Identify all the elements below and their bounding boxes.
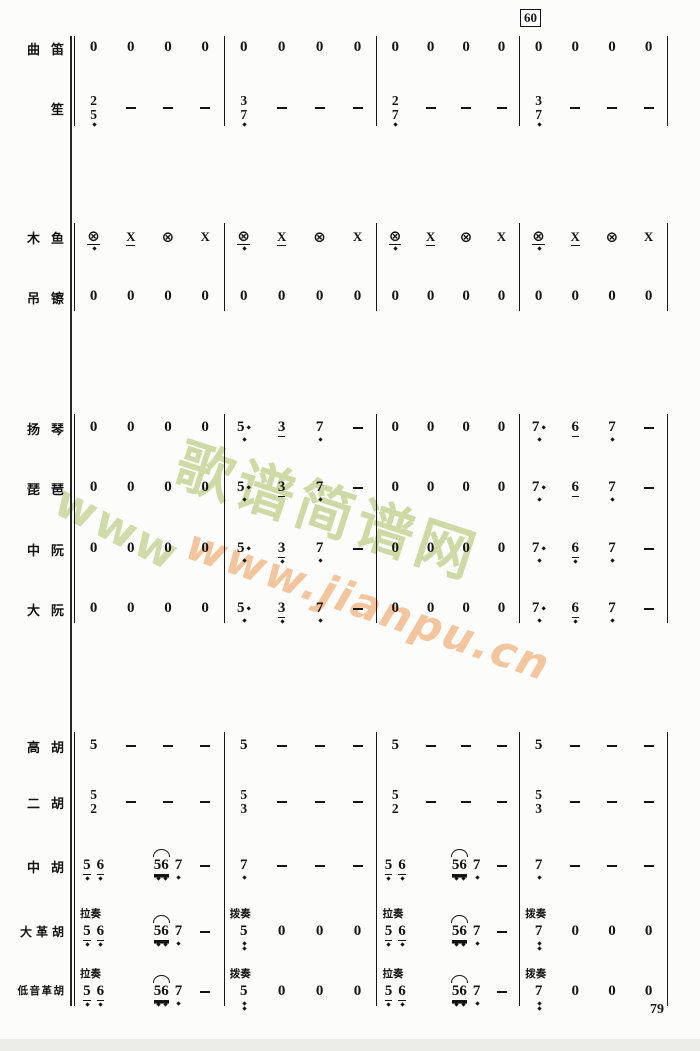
note-cell: 0000 — [75, 476, 224, 500]
beat-slot: 0 — [377, 40, 412, 56]
note-token: 0 — [391, 541, 399, 557]
note-digits: 0 — [354, 40, 362, 56]
note-digits: 0 — [316, 924, 324, 940]
dash-extension-line — [644, 548, 654, 551]
note-digits: 5 — [385, 858, 393, 875]
note-digits: ⊗ — [313, 230, 326, 245]
note-digits: 0 — [354, 984, 362, 1000]
octave-dot-icon — [394, 122, 398, 126]
dash-extension-line — [163, 745, 173, 748]
dash-extension-line — [644, 608, 654, 611]
chord-top-note: 5 — [535, 789, 542, 802]
dash-extension-line — [426, 107, 436, 110]
note-token: 0 — [127, 40, 135, 56]
beat-slot: 6 — [557, 420, 594, 437]
beat-slot: X — [484, 229, 519, 245]
tie-arc-icon — [153, 975, 170, 983]
note-token: 0 — [316, 289, 324, 305]
note-char: 5 — [391, 738, 399, 753]
note-char: 0 — [608, 924, 616, 939]
beat-slot: 0 — [301, 924, 339, 940]
note-token: 0 — [354, 984, 362, 1000]
note-digits: 6 — [572, 420, 580, 437]
note-token: 0 — [164, 420, 172, 436]
note-digits: 7 — [316, 420, 324, 436]
octave-dots — [98, 943, 105, 946]
note-cell: 0000 — [75, 597, 224, 621]
note-digits: 0 — [535, 40, 543, 56]
beat-slot: ⊗ — [75, 229, 112, 245]
rhythm-dot-icon — [541, 486, 546, 491]
note-char: 5 — [535, 738, 543, 753]
note-digits: 6 — [572, 601, 580, 618]
beat-slot: 0 — [557, 924, 594, 940]
octave-dot-row — [536, 876, 543, 879]
beat-slot: 56 — [377, 924, 412, 941]
page-bottom-strip — [0, 1039, 700, 1051]
beat-slot — [630, 107, 667, 110]
note-digits: 0 — [535, 289, 543, 305]
note-char: 5 — [237, 420, 245, 435]
instrument-label-char: 中 — [27, 540, 40, 559]
beat-slot: ⊗ — [594, 230, 631, 245]
octave-dot-icon — [156, 876, 160, 880]
instrument-label-char: 琶 — [51, 479, 64, 498]
note-digits: 5 — [240, 924, 248, 940]
octave-dot-icon — [177, 1001, 181, 1005]
octave-dot-row — [88, 247, 100, 250]
note-digits: 0 — [608, 984, 616, 1000]
note-token — [200, 991, 210, 994]
technique-label: 拉奏 — [80, 966, 101, 981]
note-token: 0 — [278, 40, 286, 56]
note-digits: X — [426, 229, 435, 246]
note-token: 0 — [572, 40, 580, 56]
instrument-label: 吊镲 — [2, 288, 64, 307]
note-char: 0 — [498, 480, 506, 495]
note-token — [461, 801, 471, 804]
note-char: 7 — [608, 480, 616, 495]
octave-dot-row — [241, 947, 248, 950]
note-char: 0 — [278, 289, 286, 304]
note-token — [497, 801, 507, 804]
octave-dot-row — [609, 438, 616, 441]
octave-dots — [474, 876, 481, 879]
octave-dot-row — [536, 942, 543, 945]
note-token: 7 — [175, 984, 183, 1000]
note-token: 0 — [90, 420, 98, 436]
beat-slot — [339, 865, 377, 868]
note-char: 0 — [90, 420, 98, 435]
note-token: 0 — [164, 601, 172, 617]
beat-slot: 0 — [263, 984, 301, 1000]
note-token: 0 — [498, 420, 506, 436]
beat-slot: 7 — [225, 858, 263, 874]
note-digits: X — [200, 229, 209, 245]
note-digits: 6 — [97, 924, 105, 941]
beat-slot: ⊗ — [149, 230, 186, 245]
note-token: 0 — [278, 289, 286, 305]
note-token — [277, 745, 287, 748]
octave-dot-row — [238, 498, 250, 501]
measure-column-4: ⊗X⊗X0000 — [520, 223, 668, 311]
note-token — [426, 107, 436, 110]
note-char: 3 — [278, 601, 286, 616]
octave-dot-row — [317, 619, 324, 622]
note-digits: 0 — [278, 40, 286, 56]
beat-slot — [263, 801, 301, 804]
octave-dot-row — [317, 498, 324, 501]
note-token: 0 — [90, 601, 98, 617]
dash-extension-line — [570, 745, 580, 748]
note-token — [644, 745, 654, 748]
beat-slot: 0 — [484, 289, 519, 305]
beat-slot: 7 — [301, 601, 339, 617]
beat-slot — [187, 991, 224, 994]
note-digits: 0 — [201, 420, 209, 436]
beat-slot: 7 — [520, 480, 557, 496]
octave-dots — [386, 1003, 393, 1006]
octave-dot-row — [453, 943, 467, 946]
octave-dot-row — [238, 438, 250, 441]
beat-slot — [339, 745, 377, 748]
octave-dots — [609, 438, 616, 441]
note-token: 37 — [240, 95, 247, 121]
octave-dot-icon — [400, 876, 404, 880]
note-char: 0 — [498, 420, 506, 435]
beat-slot: 0 — [377, 541, 412, 557]
octave-dots — [84, 943, 91, 946]
measure-column-2: 000037 — [225, 36, 378, 126]
note-char: 6 — [572, 480, 580, 495]
beat-slot: ⊗ — [301, 230, 339, 245]
note-digits: 7 — [535, 858, 543, 874]
note-digits: 0 — [645, 984, 653, 1000]
octave-dots — [573, 560, 580, 563]
x-stroke-icon: X — [126, 229, 135, 244]
beat-slot: 0 — [448, 289, 483, 305]
octave-dots — [241, 1002, 248, 1010]
note-token: 6 — [572, 601, 580, 618]
dash-extension-line — [607, 107, 617, 110]
measure-column-4: 767767767767 — [520, 414, 668, 623]
octave-dots — [536, 1002, 543, 1010]
note-token: 3 — [278, 601, 286, 618]
instrument-label: 高胡 — [2, 737, 64, 756]
note-cell: 0000 — [377, 416, 519, 440]
note-char: 0 — [164, 480, 172, 495]
note-char: 5 — [237, 601, 245, 616]
note-char: 0 — [201, 541, 209, 556]
beat-slot: 5 — [377, 738, 412, 754]
octave-dots — [609, 559, 616, 562]
chord-bottom-note: 7 — [535, 109, 542, 122]
dash-extension-line — [353, 801, 363, 804]
note-char: 0 — [498, 601, 506, 616]
note-token: 0 — [462, 541, 470, 557]
beat-slot: 0 — [413, 289, 448, 305]
note-token: 56 — [452, 984, 467, 1001]
note-char: 0 — [127, 289, 135, 304]
note-token: ⊗ — [532, 229, 545, 245]
note-digits: 0 — [164, 541, 172, 557]
beat-slot: 0 — [263, 40, 301, 56]
note-token — [607, 801, 617, 804]
note-token: 7 — [608, 601, 616, 617]
beat-slot: 56 — [75, 858, 112, 875]
note-digits: 6 — [97, 984, 105, 1001]
beat-slot: 6 — [557, 601, 594, 618]
note-char: 7 — [535, 984, 543, 999]
x-stroke-icon: X — [644, 229, 653, 244]
note-token: 0 — [498, 480, 506, 496]
note-char: 0 — [391, 289, 399, 304]
chord-bottom-wrap: 5 — [90, 109, 97, 122]
note-char: 7 — [316, 541, 324, 556]
technique-label: 拉奏 — [382, 966, 403, 981]
chord-bottom-note: 2 — [90, 803, 97, 816]
note-char: 6 — [97, 858, 105, 873]
note-token: 0 — [201, 480, 209, 496]
note-digits: 7 — [608, 601, 616, 617]
octave-dot-icon — [242, 558, 246, 562]
octave-dot-icon — [537, 875, 541, 879]
beat-slot — [630, 801, 667, 804]
note-digits: 0 — [201, 480, 209, 496]
system-group-2: ⊗X⊗X0000⊗X⊗X0000⊗X⊗X0000⊗X⊗X0000 — [74, 223, 668, 311]
beat-slot: 7 — [520, 924, 557, 940]
beat-slot: 567 — [149, 984, 186, 1001]
octave-dot-icon — [574, 559, 578, 563]
note-digits: 0 — [127, 480, 135, 496]
note-cell: 767 — [520, 597, 667, 621]
note-cell: 5000 — [225, 920, 377, 944]
beat-slot: 0 — [187, 541, 224, 557]
dash-extension-line — [497, 931, 507, 934]
octave-dot-icon — [610, 497, 614, 501]
note-cell: 5 — [75, 734, 224, 758]
beat-slot: 0 — [112, 601, 149, 617]
measure-column-3: 000027 — [377, 36, 520, 126]
tie-arc-icon — [153, 915, 170, 923]
note-token: 0 — [391, 289, 399, 305]
instrument-label-char: 曲 — [27, 39, 40, 58]
note-char: 6 — [572, 420, 580, 435]
note-token: 5 — [83, 924, 91, 941]
beat-slot: 5 — [225, 984, 263, 1000]
note-digits: 56 — [452, 858, 467, 875]
octave-dot-row — [474, 876, 481, 879]
note-token: 52 — [392, 789, 399, 815]
note-cell: 37 — [520, 91, 667, 125]
note-digits: 6 — [398, 858, 406, 875]
beat-slot: 53 — [225, 789, 263, 815]
instrument-label-char: 中 — [27, 857, 40, 876]
note-cell: 537 — [225, 416, 377, 440]
octave-dot-row — [155, 1003, 169, 1006]
note-token — [426, 745, 436, 748]
note-cell: 537 — [225, 597, 377, 621]
beat-slot: 0 — [225, 289, 263, 305]
octave-dot-icon — [85, 942, 89, 946]
note-token: 53 — [535, 789, 542, 815]
beat-slot — [187, 865, 224, 868]
beat-slot — [630, 427, 667, 430]
note-digits: 0 — [645, 924, 653, 940]
note-token: 0 — [164, 480, 172, 496]
beat-slot — [339, 487, 377, 490]
note-char: 6 — [398, 984, 406, 999]
note-char: 0 — [164, 289, 172, 304]
note-token: 0 — [498, 40, 506, 56]
beat-slot: 0 — [149, 289, 186, 305]
note-char: 5 — [452, 924, 460, 939]
note-token — [497, 865, 507, 868]
note-digits: 5 — [535, 738, 543, 754]
note-char: 0 — [608, 40, 616, 55]
note-digits: 3 — [278, 601, 286, 618]
circled-x-stroke-icon: ⊗ — [313, 230, 326, 244]
octave-dot-row — [609, 559, 616, 562]
note-token — [315, 865, 325, 868]
note-token — [570, 107, 580, 110]
note-digits: 0 — [278, 924, 286, 940]
beat-slot: 0 — [263, 289, 301, 305]
note-char: 0 — [427, 541, 435, 556]
note-token: 0 — [645, 924, 653, 940]
dash-extension-line — [644, 107, 654, 110]
note-digits: 7 — [532, 601, 540, 617]
dash-extension-line — [353, 865, 363, 868]
octave-dot-row — [393, 123, 399, 126]
note-char: 7 — [175, 984, 183, 999]
measure-column-1: 000025 — [75, 36, 225, 126]
octave-dot-icon — [394, 246, 398, 250]
note-char: 0 — [354, 40, 362, 55]
note-token: 3 — [278, 480, 286, 497]
beat-slot — [630, 487, 667, 490]
dash-extension-line — [163, 801, 173, 804]
beat-slot — [557, 801, 594, 804]
note-token: 0 — [462, 420, 470, 436]
note-token — [315, 801, 325, 804]
chord-bottom-wrap: 7 — [535, 109, 542, 122]
note-char: 5 — [83, 858, 91, 873]
octave-dot-row — [533, 559, 545, 562]
octave-dot-row — [453, 877, 467, 880]
x-stroke-icon: X — [497, 229, 506, 244]
beat-slot: 37 — [520, 95, 557, 121]
note-digits: 0 — [90, 601, 98, 617]
beat-slot: 0 — [484, 480, 519, 496]
beat-slot — [484, 801, 519, 804]
beat-slot: 56 — [377, 858, 412, 875]
note-token: 0 — [354, 924, 362, 940]
beat-slot: 0 — [413, 480, 448, 496]
note-token: 56 — [154, 924, 169, 941]
note-token — [163, 107, 173, 110]
note-digits: 5 — [237, 480, 245, 496]
note-token: X — [277, 229, 286, 246]
beat-slot — [630, 608, 667, 611]
technique-label: 拨奏 — [230, 966, 251, 981]
beat-slot: 5 — [225, 924, 263, 940]
note-digits: 0 — [427, 420, 435, 436]
note-token — [570, 865, 580, 868]
beat-slot: 0 — [557, 984, 594, 1000]
beat-slot — [187, 107, 224, 110]
beat-slot: 0 — [448, 480, 483, 496]
beat-slot: 7 — [520, 858, 557, 874]
note-digits: 5 — [237, 601, 245, 617]
octave-dots — [176, 942, 183, 945]
note-token: 0 — [316, 40, 324, 56]
note-token — [126, 801, 136, 804]
note-char: 0 — [645, 40, 653, 55]
rhythm-dot-icon — [246, 547, 251, 552]
note-token — [426, 801, 436, 804]
note-cell: 537 — [225, 537, 377, 561]
note-token: 6 — [398, 858, 406, 875]
note-char: 6 — [398, 924, 406, 939]
note-token: 0 — [240, 40, 248, 56]
instrument-label-char: 琴 — [51, 419, 64, 438]
rhythm-dot-icon — [246, 607, 251, 612]
note-char: 0 — [164, 420, 172, 435]
instrument-label-char: 笛 — [51, 39, 64, 58]
note-digits: 56 — [154, 858, 169, 875]
beat-slot: 3 — [263, 480, 301, 497]
note-token: 0 — [572, 984, 580, 1000]
note-token: 5 — [237, 601, 250, 617]
octave-dots — [399, 877, 406, 880]
octave-dots — [98, 877, 105, 880]
chord-bottom-note: 7 — [392, 109, 399, 122]
octave-dot-icon — [99, 1002, 103, 1006]
instrument-label: 低音革胡 — [2, 983, 64, 998]
dash-extension-line — [353, 107, 363, 110]
octave-dot-icon — [318, 497, 322, 501]
note-digits: 7 — [175, 984, 183, 1000]
octave-dots — [238, 559, 250, 562]
note-char: 7 — [608, 601, 616, 616]
technique-label: 拨奏 — [230, 906, 251, 921]
octave-dot-icon — [163, 876, 167, 880]
octave-dots — [317, 559, 324, 562]
octave-dots — [536, 942, 543, 950]
octave-dot-row — [241, 876, 248, 879]
beat-slot: 0 — [112, 541, 149, 557]
note-cell: 767 — [520, 416, 667, 440]
note-digits: 5 — [90, 738, 98, 754]
measure-column-3: 5525656756567拉奏56567拉奏 — [377, 732, 520, 1006]
note-char: 0 — [240, 40, 248, 55]
beat-slot — [149, 107, 186, 110]
note-digits: 7 — [240, 858, 248, 874]
note-cell: 0000 — [225, 36, 377, 60]
instrument-label-char: 高 — [27, 737, 40, 756]
beat-slot: 5 — [75, 738, 112, 754]
note-char: 0 — [427, 601, 435, 616]
instrument-label: 二胡 — [2, 793, 64, 812]
beat-slot: 0 — [520, 40, 557, 56]
beat-slot: 37 — [225, 95, 263, 121]
note-cell: 0000 — [75, 285, 224, 309]
note-token: ⊗ — [389, 229, 402, 245]
octave-dot-row — [573, 620, 580, 623]
technique-label: 拉奏 — [382, 906, 403, 921]
note-digits: 0 — [572, 40, 580, 56]
